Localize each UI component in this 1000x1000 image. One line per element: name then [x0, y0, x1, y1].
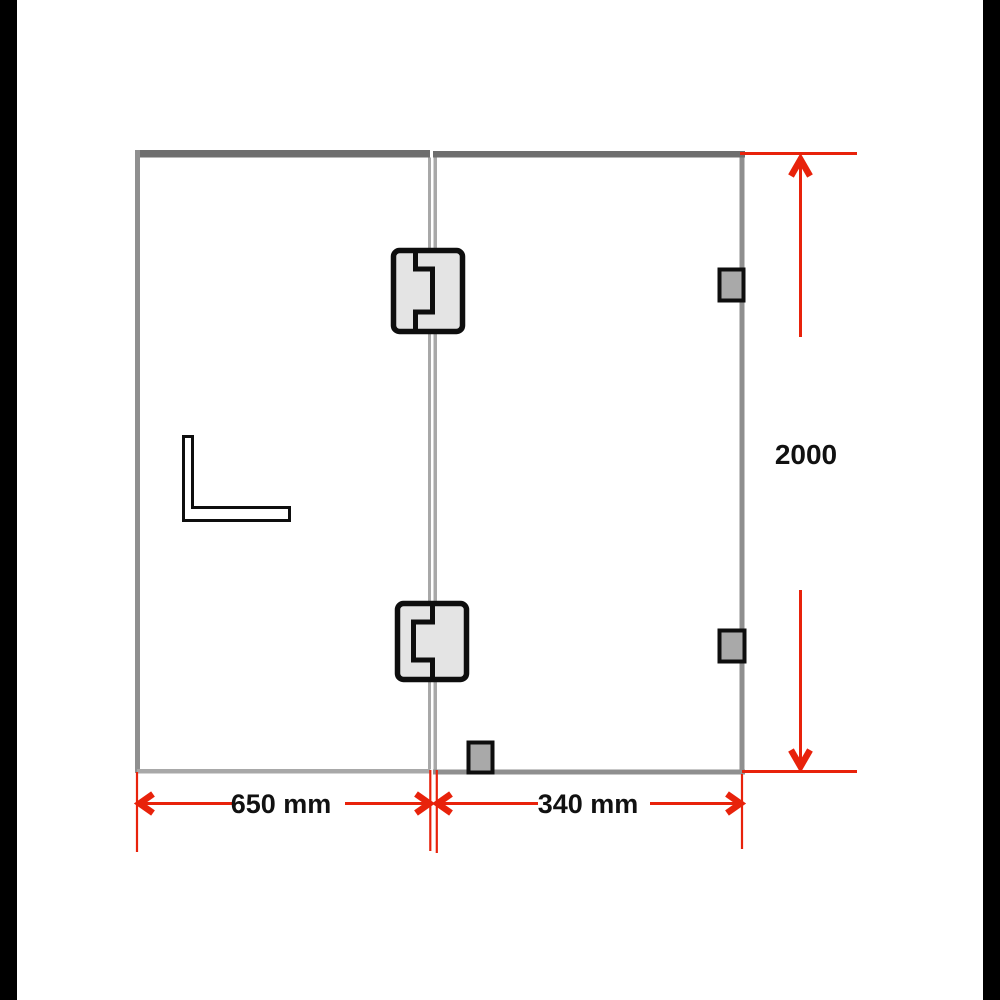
door-panel-right-edge — [740, 158, 745, 770]
door-glass-panel — [433, 151, 745, 775]
dimension-height: 2000 — [740, 154, 857, 772]
hinge-top-plate — [394, 251, 463, 332]
letterbox-left — [0, 0, 17, 1000]
width-left-dim-label: 650 mm — [231, 789, 332, 819]
width-right-dim-label: 340 mm — [538, 789, 639, 819]
left-panel-left-edge — [135, 150, 140, 773]
l-bracket — [184, 437, 290, 521]
diagram-canvas: 2000 650 mm 340 mm — [0, 0, 1000, 1000]
left-panel-top-edge — [135, 150, 430, 158]
dimension-width-left: 650 mm — [140, 789, 430, 819]
left-glass-panel — [135, 150, 431, 774]
wall-clip-top — [720, 270, 744, 301]
wall-clip-bottom — [720, 631, 745, 662]
left-panel-bottom-edge — [137, 769, 430, 774]
floor-clip — [469, 743, 493, 773]
door-panel-top-edge — [433, 151, 745, 158]
shower-screen-diagram: 2000 650 mm 340 mm — [0, 0, 1000, 1000]
height-dim-label: 2000 — [775, 439, 837, 470]
letterbox-right — [983, 0, 1000, 1000]
dimension-width-right: 340 mm — [438, 789, 741, 819]
glass-hinge-top — [394, 251, 463, 332]
glass-hinge-bottom — [398, 604, 467, 680]
